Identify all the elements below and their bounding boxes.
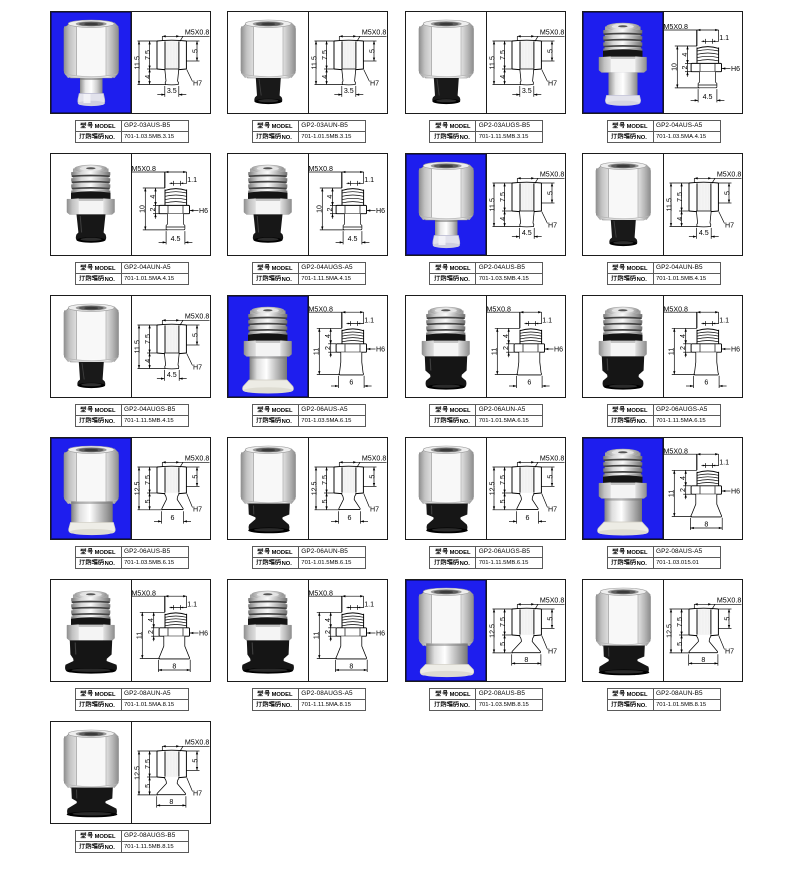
svg-text:NO.: NO. (459, 277, 470, 283)
svg-text:M5X0.8: M5X0.8 (540, 29, 565, 37)
svg-text:2: 2 (324, 346, 332, 350)
svg-text:2: 2 (149, 208, 157, 212)
svg-text:4: 4 (149, 195, 157, 199)
svg-text:4.5: 4.5 (703, 93, 713, 101)
svg-text:H7: H7 (193, 789, 202, 797)
svg-text:M5X0.8: M5X0.8 (185, 29, 210, 37)
svg-text:NO.: NO. (637, 419, 648, 425)
svg-text:5: 5 (192, 49, 200, 53)
svg-text:M5X0.8: M5X0.8 (362, 455, 387, 463)
svg-text:10: 10 (316, 205, 324, 213)
svg-text:MODEL: MODEL (272, 550, 293, 556)
svg-text:4: 4 (321, 75, 329, 79)
svg-text:11: 11 (313, 348, 321, 355)
svg-text:NO.: NO. (282, 561, 293, 567)
svg-text:4: 4 (499, 75, 507, 79)
svg-text:5: 5 (144, 784, 152, 788)
svg-text:MODEL: MODEL (95, 550, 116, 556)
svg-text:H6: H6 (376, 207, 385, 215)
svg-text:11: 11 (490, 348, 498, 355)
svg-text:MODEL: MODEL (627, 124, 648, 130)
svg-text:8: 8 (350, 662, 354, 670)
svg-text:6: 6 (171, 514, 175, 522)
svg-text:NO.: NO. (637, 561, 648, 567)
svg-text:H7: H7 (193, 505, 202, 513)
svg-text:7.5: 7.5 (499, 475, 507, 485)
svg-text:4: 4 (676, 217, 684, 221)
svg-text:NO.: NO. (459, 561, 470, 567)
svg-text:4: 4 (324, 618, 332, 622)
svg-text:4.5: 4.5 (699, 229, 709, 237)
svg-text:6: 6 (527, 378, 531, 386)
svg-text:12.5: 12.5 (488, 481, 496, 495)
svg-text:M5X0.8: M5X0.8 (717, 171, 742, 179)
svg-text:2: 2 (147, 630, 155, 634)
svg-text:1.1: 1.1 (719, 34, 729, 42)
svg-text:8: 8 (524, 656, 528, 664)
svg-text:H6: H6 (731, 487, 740, 495)
svg-text:3.5: 3.5 (522, 87, 532, 95)
svg-text:NO.: NO. (105, 277, 116, 283)
svg-text:H7: H7 (193, 79, 202, 87)
svg-text:5: 5 (546, 191, 554, 195)
svg-text:MODEL: MODEL (627, 408, 648, 414)
svg-text:8: 8 (169, 798, 173, 806)
svg-text:H7: H7 (548, 505, 557, 513)
svg-text:NO.: NO. (105, 419, 116, 425)
svg-text:4: 4 (679, 334, 687, 338)
svg-text:1.1: 1.1 (719, 316, 729, 324)
svg-text:H7: H7 (370, 505, 379, 513)
svg-text:MODEL: MODEL (449, 692, 470, 698)
svg-text:5: 5 (546, 49, 554, 53)
svg-text:M5X0.8: M5X0.8 (185, 313, 210, 321)
svg-text:7.5: 7.5 (144, 334, 152, 344)
svg-text:5: 5 (546, 617, 554, 621)
svg-text:NO.: NO. (282, 277, 293, 283)
svg-text:2: 2 (679, 346, 687, 350)
svg-text:MODEL: MODEL (272, 408, 293, 414)
svg-text:11: 11 (136, 632, 144, 639)
svg-text:NO.: NO. (282, 419, 293, 425)
svg-text:6: 6 (350, 378, 354, 386)
svg-text:MODEL: MODEL (95, 266, 116, 272)
svg-text:NO.: NO. (459, 135, 470, 141)
svg-text:NO.: NO. (105, 561, 116, 567)
svg-text:5: 5 (369, 49, 377, 53)
svg-text:4.5: 4.5 (348, 235, 358, 243)
svg-text:1.1: 1.1 (364, 176, 374, 184)
svg-text:MODEL: MODEL (95, 124, 116, 130)
svg-text:12.5: 12.5 (488, 624, 496, 638)
svg-text:3.5: 3.5 (167, 87, 177, 95)
svg-text:H7: H7 (725, 647, 734, 655)
svg-text:5: 5 (724, 617, 732, 621)
svg-text:7.5: 7.5 (321, 50, 329, 60)
svg-text:NO.: NO. (105, 703, 116, 709)
svg-text:5: 5 (192, 333, 200, 337)
svg-text:M5X0.8: M5X0.8 (185, 739, 210, 747)
svg-text:2: 2 (324, 630, 332, 634)
svg-text:MODEL: MODEL (272, 124, 293, 130)
svg-text:5: 5 (192, 475, 200, 479)
svg-text:7.5: 7.5 (144, 759, 152, 769)
svg-text:NO.: NO. (105, 845, 116, 851)
svg-text:MODEL: MODEL (449, 550, 470, 556)
svg-text:7.5: 7.5 (144, 50, 152, 60)
svg-text:MODEL: MODEL (449, 124, 470, 130)
svg-text:NO.: NO. (282, 703, 293, 709)
svg-text:2: 2 (326, 208, 334, 212)
svg-text:7.5: 7.5 (676, 192, 684, 202)
svg-text:MODEL: MODEL (627, 266, 648, 272)
svg-text:1.1: 1.1 (364, 600, 374, 608)
svg-text:4.5: 4.5 (171, 235, 181, 243)
svg-text:H7: H7 (548, 647, 557, 655)
svg-text:MODEL: MODEL (272, 266, 293, 272)
svg-text:7.5: 7.5 (499, 617, 507, 627)
svg-text:1.1: 1.1 (719, 458, 729, 466)
svg-text:NO.: NO. (637, 703, 648, 709)
svg-text:NO.: NO. (105, 135, 116, 141)
svg-text:NO.: NO. (459, 419, 470, 425)
svg-text:5: 5 (724, 191, 732, 195)
svg-text:H6: H6 (554, 345, 563, 353)
svg-text:11: 11 (668, 348, 676, 355)
svg-text:11.5: 11.5 (311, 56, 319, 69)
svg-text:4: 4 (144, 75, 152, 79)
svg-text:H6: H6 (731, 345, 740, 353)
svg-text:6: 6 (704, 378, 708, 386)
svg-text:H6: H6 (199, 629, 208, 637)
svg-text:H7: H7 (548, 79, 557, 87)
svg-text:M5X0.8: M5X0.8 (717, 597, 742, 605)
svg-text:11.5: 11.5 (134, 340, 142, 353)
svg-text:11: 11 (313, 632, 321, 639)
svg-text:5: 5 (676, 642, 684, 646)
svg-text:M5X0.8: M5X0.8 (540, 455, 565, 463)
svg-text:7.5: 7.5 (144, 475, 152, 485)
svg-text:M5X0.8: M5X0.8 (540, 171, 565, 179)
svg-text:3.5: 3.5 (344, 87, 354, 95)
svg-text:H7: H7 (548, 221, 557, 229)
svg-text:4: 4 (324, 334, 332, 338)
svg-text:MODEL: MODEL (627, 692, 648, 698)
svg-text:4: 4 (679, 476, 687, 480)
svg-text:7.5: 7.5 (499, 192, 507, 202)
svg-text:MODEL: MODEL (95, 834, 116, 840)
svg-text:11.5: 11.5 (134, 56, 142, 69)
svg-text:H6: H6 (376, 629, 385, 637)
svg-text:1.1: 1.1 (187, 176, 197, 184)
svg-text:MODEL: MODEL (449, 408, 470, 414)
svg-text:11.5: 11.5 (666, 198, 674, 211)
svg-text:4: 4 (499, 217, 507, 221)
svg-text:4: 4 (144, 359, 152, 363)
svg-text:11: 11 (668, 490, 676, 497)
svg-text:MODEL: MODEL (95, 408, 116, 414)
svg-text:7.5: 7.5 (676, 617, 684, 627)
svg-text:4: 4 (147, 618, 155, 622)
svg-text:5: 5 (499, 642, 507, 646)
svg-text:10: 10 (139, 205, 147, 213)
svg-text:NO.: NO. (282, 135, 293, 141)
svg-text:H6: H6 (731, 65, 740, 73)
svg-text:8: 8 (172, 662, 176, 670)
svg-text:2: 2 (681, 66, 689, 70)
svg-text:10: 10 (671, 63, 679, 71)
svg-text:M5X0.8: M5X0.8 (362, 29, 387, 37)
svg-text:1.1: 1.1 (542, 316, 552, 324)
svg-text:11.5: 11.5 (488, 198, 496, 211)
svg-text:NO.: NO. (637, 277, 648, 283)
svg-text:H7: H7 (193, 363, 202, 371)
svg-text:NO.: NO. (637, 135, 648, 141)
svg-text:2: 2 (502, 346, 510, 350)
svg-text:H6: H6 (199, 207, 208, 215)
svg-text:4: 4 (502, 334, 510, 338)
svg-text:4: 4 (326, 195, 334, 199)
svg-text:12.5: 12.5 (134, 766, 142, 780)
svg-text:12.5: 12.5 (666, 624, 674, 638)
svg-text:5: 5 (546, 475, 554, 479)
svg-text:5: 5 (321, 499, 329, 503)
svg-text:MODEL: MODEL (449, 266, 470, 272)
svg-text:H7: H7 (370, 79, 379, 87)
svg-text:1.1: 1.1 (187, 600, 197, 608)
svg-text:4.5: 4.5 (522, 229, 532, 237)
svg-text:4.5: 4.5 (167, 371, 177, 379)
svg-text:NO.: NO. (459, 703, 470, 709)
svg-text:5: 5 (369, 475, 377, 479)
svg-text:8: 8 (704, 520, 708, 528)
svg-text:MODEL: MODEL (272, 692, 293, 698)
svg-text:7.5: 7.5 (321, 475, 329, 485)
svg-text:H7: H7 (725, 221, 734, 229)
svg-text:1.1: 1.1 (364, 316, 374, 324)
svg-text:6: 6 (525, 514, 529, 522)
svg-text:5: 5 (499, 499, 507, 503)
svg-text:M5X0.8: M5X0.8 (540, 597, 565, 605)
svg-text:2: 2 (679, 488, 687, 492)
svg-text:MODEL: MODEL (627, 550, 648, 556)
svg-text:12.5: 12.5 (311, 481, 319, 495)
svg-text:8: 8 (701, 656, 705, 664)
svg-text:5: 5 (192, 759, 200, 763)
svg-text:M5X0.8: M5X0.8 (185, 455, 210, 463)
svg-text:MODEL: MODEL (95, 692, 116, 698)
svg-text:4: 4 (681, 53, 689, 57)
svg-text:5: 5 (144, 499, 152, 503)
svg-text:H6: H6 (376, 345, 385, 353)
svg-text:12.5: 12.5 (134, 481, 142, 495)
svg-text:6: 6 (348, 514, 352, 522)
svg-text:7.5: 7.5 (499, 50, 507, 60)
svg-text:11.5: 11.5 (488, 56, 496, 69)
